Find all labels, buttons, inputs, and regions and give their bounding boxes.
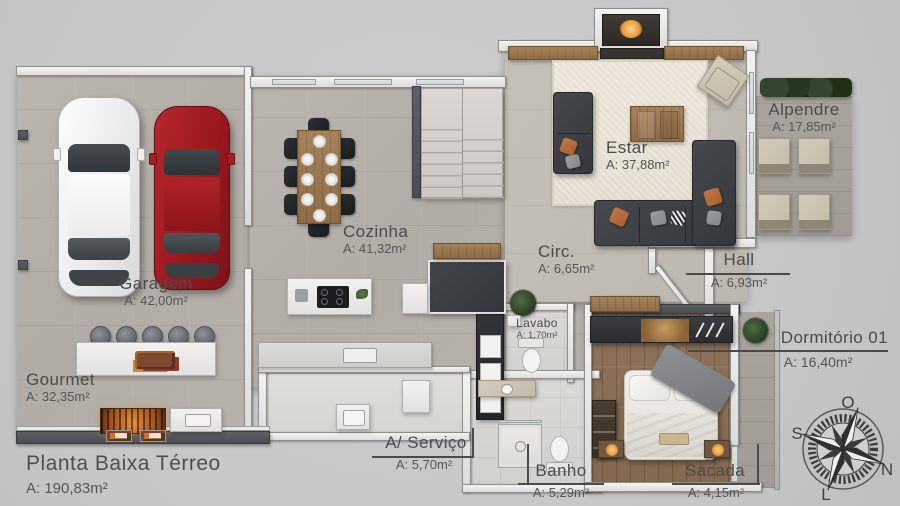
coffee-table-panel — [637, 111, 655, 139]
red-car — [154, 106, 230, 290]
nightstand — [598, 440, 624, 458]
throw-pillow — [703, 187, 723, 207]
herb-sprig — [356, 289, 368, 299]
banho-label: Banho — [514, 461, 608, 481]
hall-area-label: A: 6,93m² — [688, 276, 790, 291]
dinner-plate — [301, 153, 314, 166]
potted-plant — [510, 290, 536, 316]
nightstand — [704, 440, 730, 458]
bbq-sink — [185, 414, 211, 427]
hall-area: A: 6,93m² — [688, 276, 790, 291]
estar-window — [749, 72, 754, 114]
cozinha-window — [416, 79, 464, 85]
stair-steps-right — [463, 129, 504, 199]
cooktop — [317, 286, 349, 308]
circ-area: A: 6,65m² — [538, 262, 594, 277]
red-car-rear-window — [164, 233, 220, 253]
console-table — [590, 296, 660, 312]
fridge — [402, 283, 428, 314]
stair-steps-left — [422, 119, 462, 199]
tv-hearth — [600, 48, 664, 59]
throw-pillow — [650, 210, 667, 226]
food-platter — [135, 351, 175, 369]
shower-drain — [515, 441, 526, 452]
throw-pillow — [706, 210, 722, 226]
nightstand-lamp — [712, 444, 724, 456]
lounge-chair — [798, 194, 830, 230]
planter-box — [140, 430, 166, 442]
striped-pillow — [670, 210, 687, 227]
bath-toilet-bowl — [550, 436, 569, 462]
dormitorio-leader-line — [688, 350, 888, 352]
wall-garage-top — [16, 66, 252, 76]
lounge-chair-back — [759, 164, 791, 173]
servico-label: A/ Serviço — [374, 433, 478, 453]
sacada-area: A: 4,15m² — [672, 486, 760, 501]
wardrobe-lit-shelf — [641, 319, 689, 342]
coffee-table — [630, 106, 684, 142]
alpendre-name: Alpendre — [756, 100, 852, 120]
gourmet-bar — [76, 342, 216, 376]
white-car-roof — [68, 174, 130, 236]
sacada-name: Sacada — [668, 461, 762, 481]
laundry-basin — [343, 410, 365, 426]
burner — [336, 289, 343, 296]
kitchen-sink — [343, 348, 377, 363]
dinner-plate — [301, 173, 314, 186]
red-car-roof — [164, 177, 220, 231]
garagem-area: A: 42,00m² — [98, 294, 214, 309]
servico-leader-tick — [472, 428, 474, 456]
dormitorio-name: Dormitório 01 — [688, 328, 888, 348]
dinner-plate — [313, 209, 326, 222]
garagem-name: Garagem — [98, 274, 214, 294]
red-car-mirror — [227, 153, 235, 165]
estar-label: Estar A: 37,88m² — [606, 138, 670, 172]
shower-glass — [498, 420, 542, 423]
circ-name: Circ. — [538, 242, 594, 262]
lavabo-label: Lavabo A: 1,70m² — [506, 317, 568, 342]
staircase — [421, 88, 503, 198]
cozinha-window — [272, 79, 316, 85]
sacada-label: Sacada — [668, 461, 762, 481]
servico-name: A/ Serviço — [374, 433, 478, 453]
pantry-cabinet — [428, 260, 506, 314]
dinner-plate — [325, 173, 338, 186]
burner — [321, 289, 328, 296]
sofa-cushion-line — [558, 133, 590, 134]
lounge-chair-back — [799, 164, 831, 173]
burner — [321, 298, 328, 305]
lounge-chair — [758, 138, 790, 174]
laundry-sink — [336, 404, 370, 430]
alpendre-label: Alpendre A: 17,85m² — [756, 100, 852, 134]
title-block: Planta Baixa Térreo A: 190,83m² — [26, 452, 221, 497]
white-car — [58, 97, 140, 297]
hall-name: Hall — [688, 250, 790, 270]
kitchen-island — [287, 278, 372, 315]
dinner-plate — [313, 135, 326, 148]
compass-west-label: O — [841, 393, 854, 412]
wall-banho-left — [462, 370, 471, 492]
sofa-left — [553, 92, 593, 174]
white-car-mirror — [53, 148, 61, 161]
vanity-sink — [501, 384, 513, 395]
plan-title: Planta Baixa Térreo — [26, 452, 221, 476]
throw-pillow — [608, 206, 629, 227]
lounge-chair-back — [759, 220, 791, 229]
gourmet-name: Gourmet — [26, 370, 95, 390]
servico-area-label: A: 5,70m² — [376, 458, 472, 473]
dormitorio-area-label: A: 16,40m² — [748, 354, 888, 370]
dormitorio-label: Dormitório 01 — [688, 328, 888, 348]
stair-divider — [462, 89, 463, 199]
fireplace-fire — [620, 20, 642, 38]
circ-label: Circ. A: 6,65m² — [538, 242, 594, 276]
estar-area: A: 37,88m² — [606, 158, 670, 173]
floorplan-canvas: Garagem A: 42,00m² Gourmet A: 32,35m² Co… — [0, 0, 900, 506]
compass-rose-icon: O S N L — [786, 392, 900, 506]
washer — [402, 380, 430, 413]
cozinha-area: A: 41,32m² — [343, 242, 408, 257]
wall-garage-cozinha-upper — [244, 66, 252, 226]
bed-tray — [659, 433, 689, 445]
alpendre-area: A: 17,85m² — [756, 120, 852, 135]
white-car-windshield — [68, 144, 130, 172]
coffee-table-panel — [660, 111, 678, 139]
dormitorio-area: A: 16,40m² — [748, 354, 888, 370]
wall-garage-cozinha-lower — [244, 268, 252, 438]
sofa-cushion-line — [639, 207, 640, 243]
banho-area: A: 5,29m² — [518, 486, 604, 501]
garagem-label: Garagem A: 42,00m² — [98, 274, 214, 308]
lavabo-name: Lavabo — [506, 317, 568, 331]
gourmet-label: Gourmet A: 32,35m² — [26, 370, 95, 404]
banho-name: Banho — [514, 461, 608, 481]
red-car-windshield — [164, 149, 220, 175]
garage-column-marker — [18, 130, 28, 140]
lounge-chair — [758, 194, 790, 230]
nightstand-lamp — [606, 444, 618, 456]
white-car-rear-window — [68, 238, 130, 260]
lounge-chair-back — [799, 220, 831, 229]
dinner-plate — [325, 193, 338, 206]
sacada-leader-tick — [757, 444, 759, 483]
appliance-tower — [476, 314, 504, 420]
dish-rack — [295, 289, 308, 302]
dinner-plate — [301, 193, 314, 206]
compass-east-label: L — [821, 485, 830, 504]
servico-area: A: 5,70m² — [376, 458, 472, 473]
tv-panel-right — [664, 46, 744, 60]
wall-stair-side — [412, 86, 421, 198]
dinner-plate — [325, 153, 338, 166]
gourmet-area: A: 32,35m² — [26, 390, 95, 405]
compass-south-label: S — [791, 424, 802, 443]
garage-column-marker — [18, 260, 28, 270]
throw-pillow — [565, 153, 582, 169]
estar-name: Estar — [606, 138, 670, 158]
tv-panel-left — [508, 46, 598, 60]
hall-label: Hall — [688, 250, 790, 270]
compass-north-label: N — [881, 460, 893, 479]
sacada-area-label: A: 4,15m² — [672, 486, 760, 501]
burner — [336, 298, 343, 305]
lounge-chair — [798, 138, 830, 174]
lavabo-area: A: 1,70m² — [506, 331, 568, 342]
cozinha-name: Cozinha — [343, 222, 408, 242]
sofa-chaise — [692, 140, 736, 246]
cozinha-label: Cozinha A: 41,32m² — [343, 222, 408, 256]
white-car-mirror — [137, 148, 145, 161]
hedge — [760, 78, 852, 97]
dining-table — [297, 130, 341, 224]
console-shelf-kitchen — [433, 243, 501, 259]
plan-total-area: A: 190,83m² — [26, 480, 221, 497]
estar-window — [749, 132, 754, 174]
banho-area-label: A: 5,29m² — [518, 486, 604, 501]
built-in-oven — [480, 335, 501, 358]
bbq-counter — [170, 408, 222, 432]
red-car-mirror — [149, 153, 157, 165]
cozinha-window — [334, 79, 392, 85]
planter-box — [106, 430, 132, 442]
lavabo-toilet-bowl — [522, 348, 541, 373]
kitchen-counter — [258, 342, 432, 368]
bath-vanity — [478, 380, 536, 397]
